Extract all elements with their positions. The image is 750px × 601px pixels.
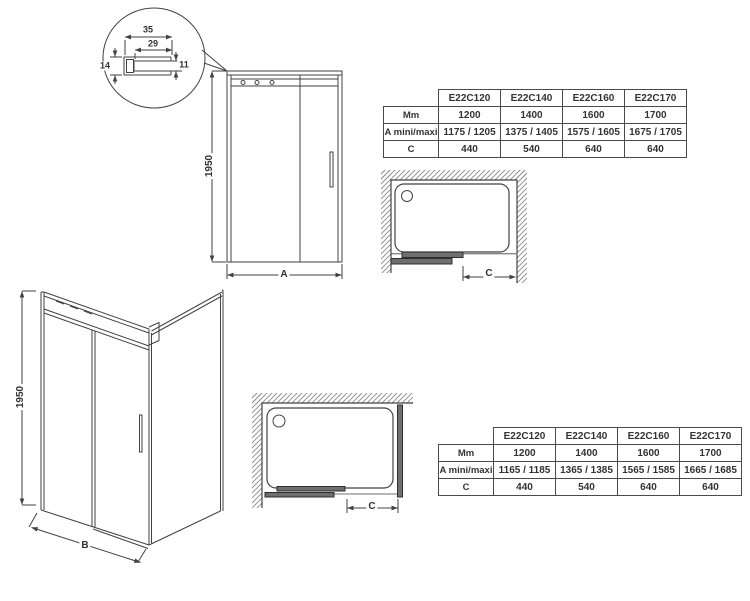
spec-table-niche: E22C120 E22C140 E22C160 E22C170 Mm 1200 …	[383, 89, 687, 158]
door-handle-3d	[140, 415, 143, 452]
plan-bottom-c-label: C	[366, 502, 377, 512]
row-label: C	[384, 141, 439, 158]
sliding-panel-bar	[277, 487, 345, 492]
callout-circle	[103, 8, 205, 108]
plan-view-corner	[252, 393, 413, 513]
dim-label-29: 29	[146, 40, 160, 49]
cell: 1600	[563, 107, 625, 124]
cell: 1375 / 1405	[501, 124, 563, 141]
cell: 1165 / 1185	[494, 462, 556, 479]
dim-label-11: 11	[177, 61, 191, 70]
wall-hatch	[252, 393, 262, 508]
perspective-width-label: B	[79, 541, 90, 551]
col-header: E22C140	[501, 90, 563, 107]
wall-faces	[391, 180, 517, 283]
col-header: E22C120	[439, 90, 501, 107]
plan-top-c-label: C	[483, 269, 494, 279]
cell: 440	[494, 479, 556, 496]
cell: 640	[618, 479, 680, 496]
door-handle	[330, 152, 333, 187]
cell: 640	[625, 141, 687, 158]
spec-table-corner: E22C120 E22C140 E22C160 E22C170 Mm 1200 …	[438, 427, 742, 496]
detail-callout	[103, 8, 227, 108]
door-frame	[227, 71, 342, 262]
callout-leader-line	[202, 50, 227, 71]
drain-icon	[273, 415, 285, 427]
wall-hatch	[252, 393, 413, 403]
cell: 1600	[618, 445, 680, 462]
side-panel-bar	[398, 405, 403, 497]
cell: 1575 / 1605	[563, 124, 625, 141]
table-header-row: E22C120 E22C140 E22C160 E22C170	[384, 90, 687, 107]
table-row: Mm 1200 1400 1600 1700	[439, 445, 742, 462]
cell: 1365 / 1385	[556, 462, 618, 479]
front-height-label: 1950	[205, 153, 215, 179]
wall-hatch	[381, 170, 527, 180]
row-label: A mini/maxi	[384, 124, 439, 141]
table-header-row: E22C120 E22C140 E22C160 E22C170	[439, 428, 742, 445]
fixed-panel-bar	[265, 493, 334, 498]
wall-hatch	[381, 170, 391, 273]
top-rail-3d	[44, 292, 159, 350]
sliding-panel-bar	[402, 252, 463, 258]
roller-icon	[270, 81, 274, 85]
glass-section	[127, 60, 134, 73]
perspective-corner-view	[22, 290, 223, 563]
col-header: E22C170	[625, 90, 687, 107]
plan-view-niche	[381, 170, 527, 283]
cell: 1175 / 1205	[439, 124, 501, 141]
technical-drawing-page: 35 29 14 11 1950 A 1950 B C C E22C120 E2…	[0, 0, 750, 601]
col-header: E22C140	[556, 428, 618, 445]
table-row: C 440 540 640 640	[439, 479, 742, 496]
cell: 540	[556, 479, 618, 496]
table-row: A mini/maxi 1175 / 1205 1375 / 1405 1575…	[384, 124, 687, 141]
row-label: C	[439, 479, 494, 496]
cell: 1700	[625, 107, 687, 124]
shower-tray	[267, 408, 393, 488]
cell: 640	[563, 141, 625, 158]
profile-section	[124, 57, 171, 75]
table-corner-blank	[384, 90, 439, 107]
table-row: Mm 1200 1400 1600 1700	[384, 107, 687, 124]
cell: 1665 / 1685	[680, 462, 742, 479]
dim-label-35: 35	[141, 26, 155, 35]
cell: 640	[680, 479, 742, 496]
front-width-label: A	[278, 270, 289, 280]
drain-icon	[402, 191, 413, 202]
row-label: A mini/maxi	[439, 462, 494, 479]
roller-icon	[255, 81, 259, 85]
cell: 540	[501, 141, 563, 158]
roller-icon	[241, 81, 245, 85]
cell: 1400	[556, 445, 618, 462]
cell: 1675 / 1705	[625, 124, 687, 141]
wall-hatch	[517, 170, 527, 283]
perspective-height-label: 1950	[16, 384, 26, 410]
front-elevation-view	[212, 71, 342, 279]
cell: 440	[439, 141, 501, 158]
dim-label-14: 14	[98, 62, 112, 71]
col-header: E22C160	[563, 90, 625, 107]
col-header: E22C160	[618, 428, 680, 445]
table-corner-blank	[439, 428, 494, 445]
table-row: C 440 540 640 640	[384, 141, 687, 158]
col-header: E22C120	[494, 428, 556, 445]
col-header: E22C170	[680, 428, 742, 445]
cell: 1400	[501, 107, 563, 124]
top-rail	[231, 79, 338, 86]
cell: 1200	[439, 107, 501, 124]
fixed-panel-bar	[391, 259, 452, 265]
cell: 1565 / 1585	[618, 462, 680, 479]
cell: 1200	[494, 445, 556, 462]
row-label: Mm	[439, 445, 494, 462]
table-row: A mini/maxi 1165 / 1185 1365 / 1385 1565…	[439, 462, 742, 479]
row-label: Mm	[384, 107, 439, 124]
cell: 1700	[680, 445, 742, 462]
